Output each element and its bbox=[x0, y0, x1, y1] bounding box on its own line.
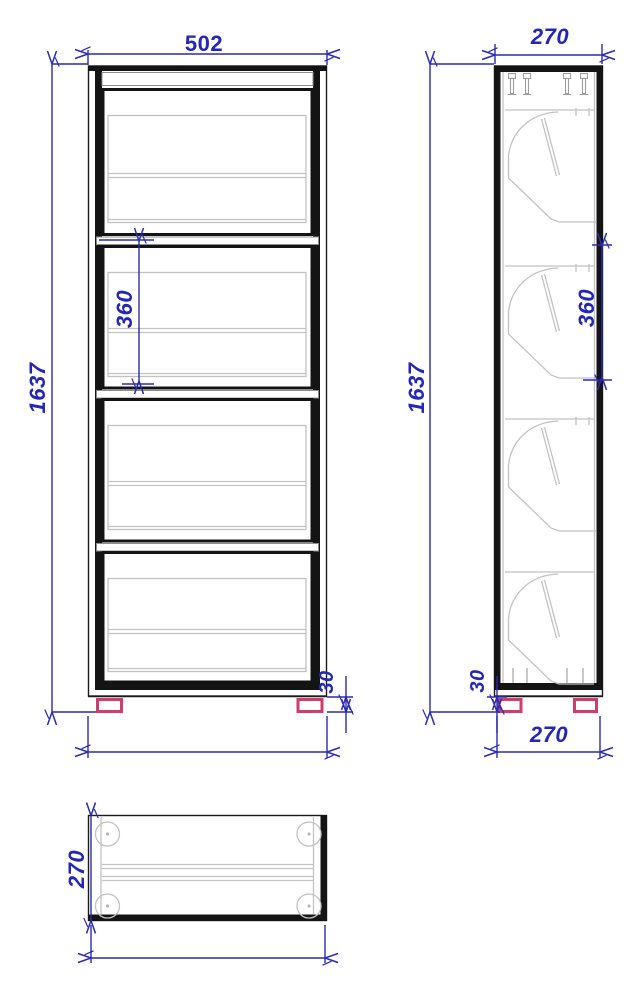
side-compartment-4 bbox=[505, 572, 594, 684]
side-back-foot bbox=[499, 700, 521, 712]
side-view-dimensions: 270 1637 360 30 270 bbox=[404, 24, 612, 758]
front-right-wall bbox=[313, 71, 320, 683]
front-shelf-rail-3 bbox=[97, 544, 319, 552]
side-carcass-outline bbox=[495, 66, 603, 696]
front-compartment-pitch-label: 360 bbox=[112, 290, 137, 328]
side-front-foot bbox=[575, 700, 597, 712]
front-feet-height-label: 30 bbox=[316, 670, 338, 693]
side-compartment-3 bbox=[505, 417, 596, 531]
front-left-foot bbox=[98, 700, 122, 712]
front-shelf-rail-1 bbox=[97, 237, 319, 245]
top-view-dimensions: 270 bbox=[64, 816, 325, 964]
side-front-wall bbox=[597, 66, 604, 690]
side-back-wall bbox=[494, 66, 501, 690]
front-bottom-edge bbox=[95, 683, 320, 690]
side-view bbox=[494, 66, 603, 712]
front-height-label: 1637 bbox=[25, 361, 50, 413]
side-feet-height-label: 30 bbox=[467, 669, 489, 692]
top-depth-label: 270 bbox=[64, 850, 89, 889]
front-width-label: 502 bbox=[185, 31, 223, 56]
drawing-canvas: 502 1637 360 30 bbox=[0, 0, 629, 992]
top-view bbox=[89, 816, 328, 922]
front-right-foot bbox=[298, 700, 322, 712]
side-top-edge bbox=[494, 66, 603, 73]
side-height-label: 1637 bbox=[404, 361, 429, 413]
front-left-wall bbox=[95, 71, 102, 683]
side-screws bbox=[508, 74, 588, 95]
front-compartment-4 bbox=[103, 553, 312, 683]
front-top-rail bbox=[102, 73, 313, 86]
side-depth-bottom-label: 270 bbox=[529, 722, 568, 747]
top-front-edge bbox=[89, 915, 328, 922]
front-view bbox=[88, 66, 327, 712]
front-compartment-3 bbox=[103, 400, 312, 542]
top-feet-circles bbox=[96, 822, 322, 918]
front-top-edge bbox=[88, 66, 327, 72]
technical-drawing: 502 1637 360 30 bbox=[0, 0, 629, 992]
side-compartment-pitch-label: 360 bbox=[574, 289, 599, 327]
side-compartment-1 bbox=[505, 108, 596, 222]
front-compartment-1 bbox=[103, 90, 312, 235]
front-shelf-rail-2 bbox=[97, 391, 319, 399]
side-depth-top-label: 270 bbox=[530, 24, 569, 49]
